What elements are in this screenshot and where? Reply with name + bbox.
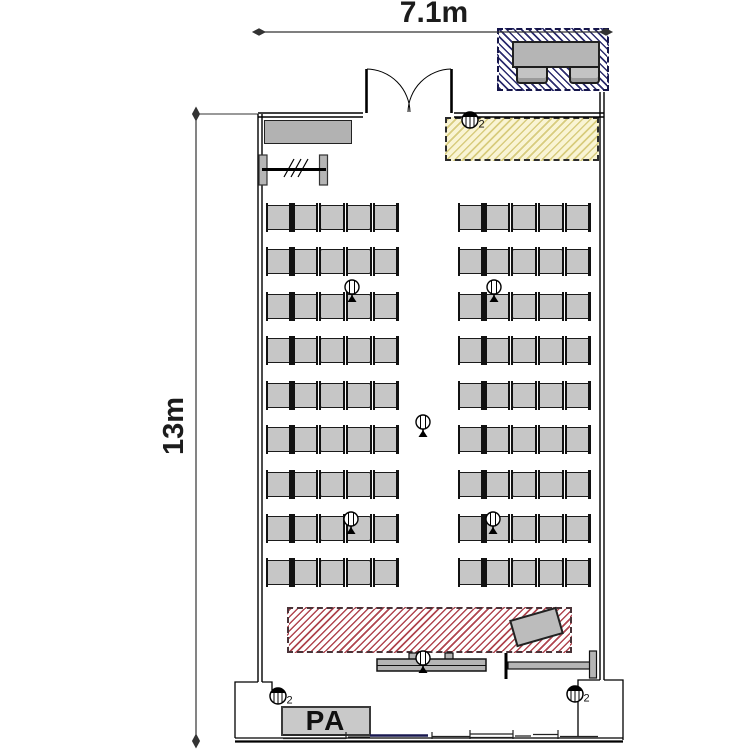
chair [346, 560, 371, 585]
chair [373, 516, 398, 541]
chair [266, 560, 291, 585]
chair [565, 516, 590, 541]
chair [346, 294, 371, 319]
chair [346, 472, 371, 497]
chair [266, 472, 291, 497]
chair [538, 427, 563, 452]
chair [373, 427, 398, 452]
chair [538, 516, 563, 541]
chair [373, 472, 398, 497]
chair [565, 294, 590, 319]
chair [565, 560, 590, 585]
chair [320, 427, 345, 452]
chair [346, 205, 371, 230]
chair [346, 427, 371, 452]
chair [565, 249, 590, 274]
chair [458, 472, 483, 497]
chair [293, 516, 318, 541]
depth-dimension-line [193, 108, 259, 748]
chair [346, 516, 371, 541]
chair [458, 427, 483, 452]
bottom-wall [235, 738, 623, 742]
chair [293, 427, 318, 452]
mic-stand-icon [416, 651, 430, 673]
chair [512, 205, 537, 230]
chair [320, 383, 345, 408]
chair [565, 338, 590, 363]
chair [485, 427, 510, 452]
chair [485, 338, 510, 363]
chair [320, 294, 345, 319]
chair [266, 205, 291, 230]
chair [266, 383, 291, 408]
side-equipment-table [506, 651, 597, 679]
entrance-desk-table [512, 41, 600, 68]
rear-equipment-hatch-area [445, 117, 599, 161]
chair [346, 249, 371, 274]
chair [512, 427, 537, 452]
chair [346, 383, 371, 408]
chair [538, 560, 563, 585]
chair [565, 383, 590, 408]
chair [458, 516, 483, 541]
chair [320, 560, 345, 585]
side-counter-table [264, 120, 352, 144]
chair [293, 294, 318, 319]
chair [485, 383, 510, 408]
chair [512, 294, 537, 319]
chair [373, 294, 398, 319]
double-door [367, 69, 452, 113]
chair [512, 472, 537, 497]
chair [565, 205, 590, 230]
chair [293, 472, 318, 497]
coat-rack [259, 155, 328, 185]
chair [458, 294, 483, 319]
chair [293, 205, 318, 230]
chair [320, 472, 345, 497]
chair [346, 338, 371, 363]
chair [485, 472, 510, 497]
chair [373, 205, 398, 230]
pa-equipment-box: PA [281, 706, 371, 736]
speaker-icon: 2 [270, 688, 293, 707]
door-swing-arc [367, 69, 410, 112]
chair [266, 249, 291, 274]
chair [293, 383, 318, 408]
chair [538, 294, 563, 319]
chair [266, 516, 291, 541]
chair [266, 338, 291, 363]
chair [458, 205, 483, 230]
chair [373, 338, 398, 363]
chair [485, 516, 510, 541]
pa-label: PA [306, 707, 347, 735]
chair [266, 294, 291, 319]
wall-pillar-left [235, 682, 272, 738]
speaker-qty-label: 2 [584, 693, 590, 705]
room-depth-dimension-label: 13m [150, 394, 198, 458]
chair [485, 205, 510, 230]
chair [512, 560, 537, 585]
chair [373, 249, 398, 274]
chair [293, 249, 318, 274]
chair [373, 560, 398, 585]
chair [266, 427, 291, 452]
speaker-qty-label: 2 [287, 695, 293, 707]
door-swing-arc [408, 69, 451, 112]
chair [293, 338, 318, 363]
head-table [377, 653, 486, 671]
chair [512, 516, 537, 541]
chair [538, 472, 563, 497]
chair [538, 205, 563, 230]
chair [512, 338, 537, 363]
chair [538, 249, 563, 274]
chair [485, 560, 510, 585]
entrance-desk-chair [516, 66, 548, 84]
mic-stand-icon [416, 415, 430, 437]
speaker-icon: 2 [567, 686, 590, 705]
chair [293, 560, 318, 585]
chair [512, 249, 537, 274]
chair [512, 383, 537, 408]
wall-pillar-right [578, 680, 623, 740]
chair [320, 516, 345, 541]
chair [458, 249, 483, 274]
chair [320, 338, 345, 363]
chair [565, 427, 590, 452]
chair [458, 338, 483, 363]
chair [565, 472, 590, 497]
chair [458, 383, 483, 408]
chair [320, 205, 345, 230]
chair [373, 383, 398, 408]
entrance-desk-chair [569, 66, 600, 84]
room-width-dimension-label: 7.1m [260, 0, 608, 30]
floor-plan: PA 7.1m 13m [0, 0, 750, 750]
chair [320, 249, 345, 274]
chair [538, 338, 563, 363]
chair [485, 294, 510, 319]
chair [538, 383, 563, 408]
chair [458, 560, 483, 585]
chair [485, 249, 510, 274]
